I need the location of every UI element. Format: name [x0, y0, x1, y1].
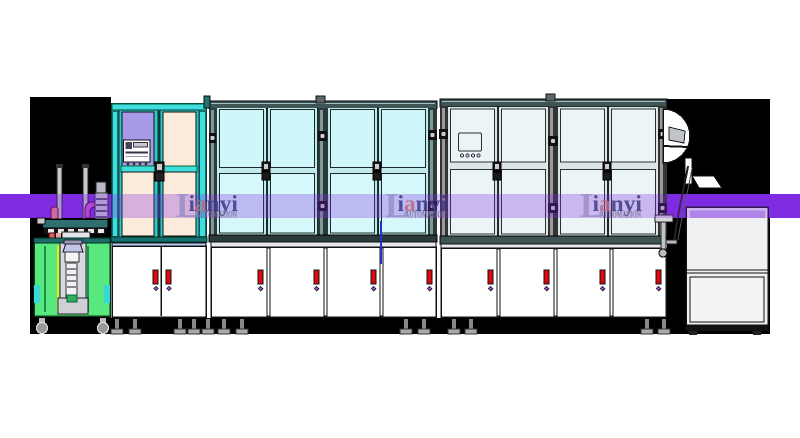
- svg-text:AUTOMATION: AUTOMATION: [600, 211, 641, 221]
- svg-text:AUTOMATION: AUTOMATION: [196, 211, 237, 221]
- svg-text:AUTOMATION: AUTOMATION: [405, 211, 446, 221]
